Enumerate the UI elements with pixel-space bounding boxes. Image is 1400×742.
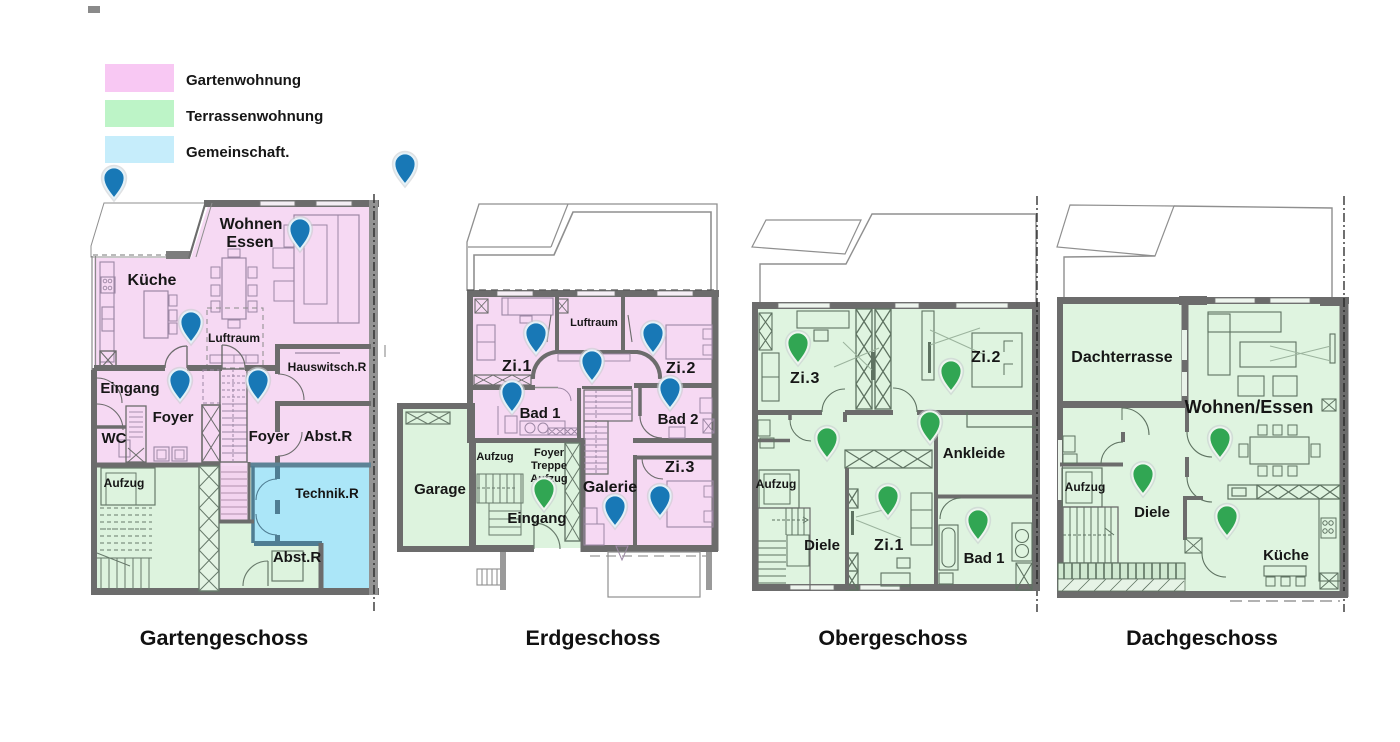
svg-text:Foyer: Foyer <box>534 447 565 459</box>
svg-text:Wohnen: Wohnen <box>220 216 283 233</box>
svg-text:Zi.1: Zi.1 <box>874 537 904 554</box>
svg-text:Foyer: Foyer <box>153 409 194 426</box>
svg-text:Abst.R: Abst.R <box>273 549 322 566</box>
svg-text:Erdgeschoss: Erdgeschoss <box>525 626 660 650</box>
svg-text:Gartenwohnung: Gartenwohnung <box>186 72 301 89</box>
svg-text:Gartengeschoss: Gartengeschoss <box>140 626 309 650</box>
svg-text:Dachterrasse: Dachterrasse <box>1071 349 1173 366</box>
svg-text:Luftraum: Luftraum <box>208 331 260 345</box>
svg-text:Luftraum: Luftraum <box>570 317 618 329</box>
svg-text:Bad 1: Bad 1 <box>520 405 561 422</box>
svg-text:Treppe: Treppe <box>531 460 567 472</box>
svg-text:Küche: Küche <box>1263 547 1309 564</box>
svg-text:Ankleide: Ankleide <box>943 445 1006 462</box>
svg-text:Eingang: Eingang <box>100 380 159 397</box>
svg-text:Hauswitsch.R: Hauswitsch.R <box>288 360 367 374</box>
svg-text:Foyer: Foyer <box>249 428 290 445</box>
svg-text:Zi.2: Zi.2 <box>971 349 1001 366</box>
svg-text:Zi.1: Zi.1 <box>502 358 532 375</box>
svg-text:Zi.2: Zi.2 <box>666 360 696 377</box>
svg-text:Aufzug: Aufzug <box>1065 480 1106 494</box>
svg-text:Aufzug: Aufzug <box>756 477 797 491</box>
svg-text:Galerie: Galerie <box>583 479 637 496</box>
svg-text:Abst.R: Abst.R <box>304 428 353 445</box>
svg-text:WC: WC <box>102 430 127 447</box>
svg-text:Technik.R: Technik.R <box>295 486 359 501</box>
svg-text:Terrassenwohnung: Terrassenwohnung <box>186 108 323 125</box>
svg-text:Garage: Garage <box>414 481 466 498</box>
svg-text:Zi.3: Zi.3 <box>790 370 820 387</box>
svg-text:Diele: Diele <box>804 537 840 554</box>
svg-text:Bad 2: Bad 2 <box>658 411 699 428</box>
svg-text:Diele: Diele <box>1134 504 1170 521</box>
svg-text:Eingang: Eingang <box>507 510 566 527</box>
svg-text:Zi.3: Zi.3 <box>665 459 695 476</box>
svg-text:Dachgeschoss: Dachgeschoss <box>1126 626 1278 650</box>
svg-text:Gemeinschaft.: Gemeinschaft. <box>186 144 289 161</box>
svg-text:Aufzug: Aufzug <box>104 476 145 490</box>
svg-text:Obergeschoss: Obergeschoss <box>818 626 967 650</box>
svg-text:Bad 1: Bad 1 <box>964 550 1005 567</box>
svg-text:Wohnen/Essen: Wohnen/Essen <box>1185 397 1314 417</box>
svg-text:Aufzug: Aufzug <box>476 451 513 463</box>
svg-text:Küche: Küche <box>128 272 177 289</box>
svg-text:Essen: Essen <box>226 234 273 251</box>
